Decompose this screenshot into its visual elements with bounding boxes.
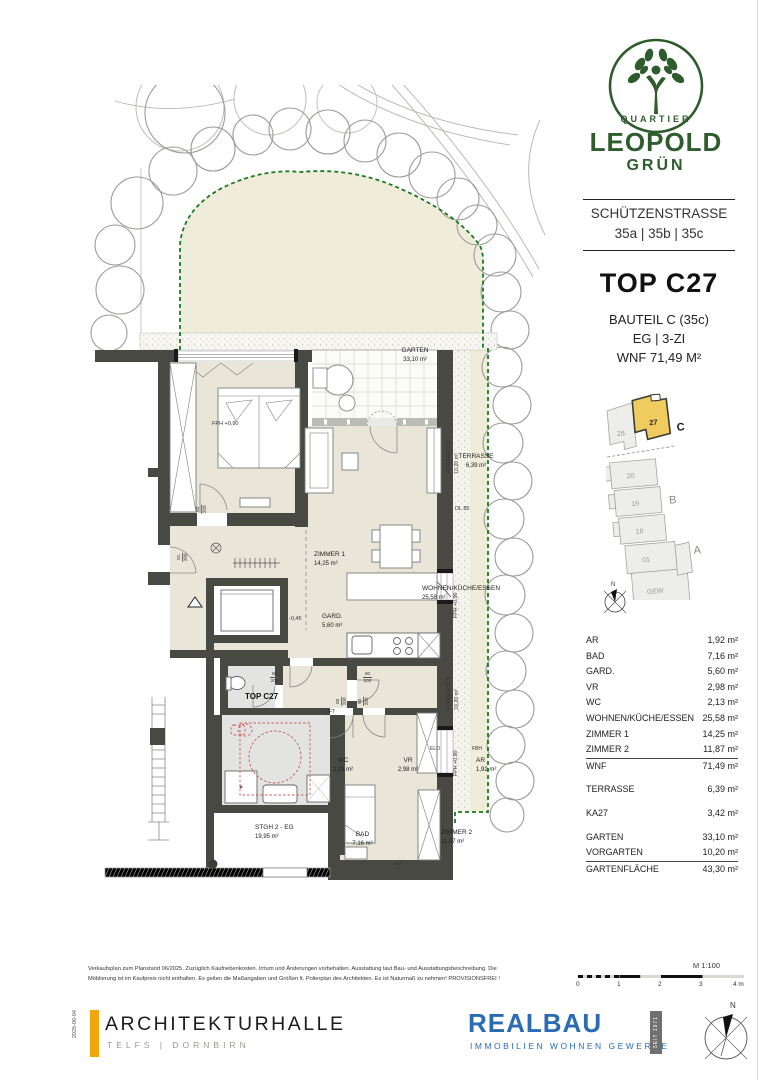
- wm-label: WM: [394, 861, 401, 866]
- realbau-logo: REALBAU: [468, 1008, 602, 1039]
- building-label: BAUTEIL C (35c): [570, 312, 748, 327]
- scale-tick-0: 0: [576, 981, 580, 988]
- architect-logo-bar: [90, 1010, 99, 1057]
- floor-plan: GARTEN33,10 m² FPH +0,90 TERRASSE6,39 m²…: [85, 85, 560, 885]
- door-dim-entrance: 91205: [176, 553, 189, 562]
- unit-title: TOP C27: [570, 268, 748, 299]
- floorplan-sheet: GARTEN33,10 m² FPH +0,90 TERRASSE6,39 m²…: [0, 0, 763, 1080]
- brand-main-label: LEOPOLD: [576, 127, 736, 158]
- wohnen-label: WOHNEN/KÜCHE/ESSEN25,58 m²: [422, 585, 500, 602]
- door-dim-wc: 80200: [270, 671, 279, 684]
- keyplan-block-b: B: [669, 494, 677, 507]
- keyplan-unit-gew: GEW: [647, 588, 665, 596]
- vr-label: VR2,98 m²: [388, 757, 428, 774]
- zimmer2-label: ZIMMER 211,87 m²: [441, 829, 472, 846]
- scale-bar: [578, 973, 745, 981]
- table-row: WC2,13 m²: [586, 695, 738, 711]
- address-rule-top: [583, 199, 735, 200]
- brand-top-label: QUARTIER: [600, 114, 712, 124]
- table-row: KA273,42 m²: [586, 806, 738, 822]
- architect-name: ARCHITEKTURHALLE: [105, 1013, 345, 1036]
- realbau-seit-badge: SEIT 1971: [650, 1011, 662, 1054]
- disclaimer-text: Verkaufsplan zum Planstand 06/2025. Zuzü…: [88, 965, 550, 985]
- north-compass-icon: N: [696, 998, 760, 1068]
- keyplan-unit-27: 27: [649, 418, 658, 428]
- scale-tick-4: 4 m: [733, 981, 744, 988]
- table-row: AR1,92 m²: [586, 633, 738, 649]
- elo-label: ELO: [430, 746, 440, 752]
- scale-tick-2: 2: [658, 981, 662, 988]
- fph-top-label: FPH +0,90: [212, 421, 238, 427]
- address-numbers: 35a | 35b | 35c: [576, 226, 742, 241]
- table-row: TERRASSE6,39 m²: [586, 782, 738, 798]
- address-street: SCHÜTZENSTRASSE: [576, 206, 742, 221]
- level-label: -0,45: [289, 616, 302, 622]
- table-row: GARTEN33,10 m²: [586, 830, 738, 846]
- brand-sub-label: GRÜN: [576, 157, 736, 175]
- plan-date: 2025-06-04: [72, 1010, 78, 1060]
- table-row: ZIMMER 114,25 m²: [586, 727, 738, 743]
- keyplan-unit-18: 18: [635, 528, 643, 536]
- table-row: WOHNEN/KÜCHE/ESSEN25,58 m²: [586, 711, 738, 727]
- keyplan-unit-19: 19: [631, 500, 639, 508]
- tree-icon: [626, 48, 686, 114]
- floor-rooms-label: EG | 3-ZI: [570, 331, 748, 346]
- table-row: ZIMMER 211,87 m²: [586, 742, 738, 758]
- door-dim-zimmer2: 80200: [357, 697, 370, 706]
- fph-right-upper: FPH +0,90: [453, 574, 461, 618]
- vorgarten-label-lower: VORGARTEN10,20 m²: [446, 648, 462, 710]
- gard-label: GARD.5,60 m²: [322, 613, 343, 630]
- stgh-label: STGH 2 - EG19,95 m²: [255, 824, 294, 841]
- door-dim-bad: 80200: [335, 697, 348, 706]
- keyplan-north-label: N: [611, 582, 615, 588]
- garten-label: GARTEN33,10 m²: [365, 347, 465, 364]
- dl85-label: DL 85: [455, 506, 469, 512]
- address-rule-bottom: [583, 250, 735, 251]
- table-row: VORGARTEN10,20 m²: [586, 845, 738, 861]
- table-row: BAD7,16 m²: [586, 649, 738, 665]
- bad-label: BAD7,16 m²: [335, 831, 390, 848]
- zimmer1-label: ZIMMER 114,25 m²: [314, 551, 345, 568]
- lift-label: LIFT: [325, 709, 335, 715]
- keyplan-block-a: A: [693, 544, 702, 557]
- scale-title: M 1:100: [600, 961, 720, 970]
- vorgarten-label-upper: VORGARTEN10,20 m²: [446, 396, 462, 474]
- table-row-gartenflaeche: GARTENFLÄCHE43,30 m²: [586, 861, 738, 878]
- keyplan: 28 27 C 20 19 18 B 01 GEW A: [606, 388, 746, 600]
- architect-locations: TELFS | DORNBIRN: [107, 1040, 250, 1050]
- door-dim-ar: 80200: [363, 671, 372, 684]
- realbau-tagline: IMMOBILIEN WOHNEN GEWERBE: [470, 1041, 669, 1051]
- fph-right-lower: FPH +0,90: [453, 732, 461, 776]
- area-table: AR1,92 m² BAD7,16 m² GARD.5,60 m² VR2,98…: [586, 633, 738, 877]
- wc-label: WC2,13 m²: [325, 757, 361, 774]
- living-area-label: WNF 71,49 M²: [570, 350, 748, 365]
- ar-label: AR1,92 m²: [476, 757, 496, 774]
- keyplan-compass-icon: N: [598, 578, 632, 618]
- keyplan-unit-28: 28: [617, 430, 625, 438]
- page-edge: [757, 0, 758, 1080]
- keyplan-unit-01: 01: [642, 557, 650, 565]
- fbh-label: FBH: [472, 746, 482, 752]
- door-dim-zimmer1: 80200: [195, 505, 208, 514]
- scale-tick-1: 1: [617, 981, 621, 988]
- table-row-wnf: WNF71,49 m²: [586, 758, 738, 775]
- scale-tick-3: 3: [699, 981, 703, 988]
- keyplan-block-c: C: [676, 421, 685, 434]
- compass-north-label: N: [730, 1001, 736, 1010]
- unit-marker-label: TOP C27: [245, 692, 278, 701]
- table-row: GARD.5,60 m²: [586, 664, 738, 680]
- lift: [214, 586, 280, 635]
- table-row: VR2,98 m²: [586, 680, 738, 696]
- keyplan-unit-20: 20: [627, 473, 635, 481]
